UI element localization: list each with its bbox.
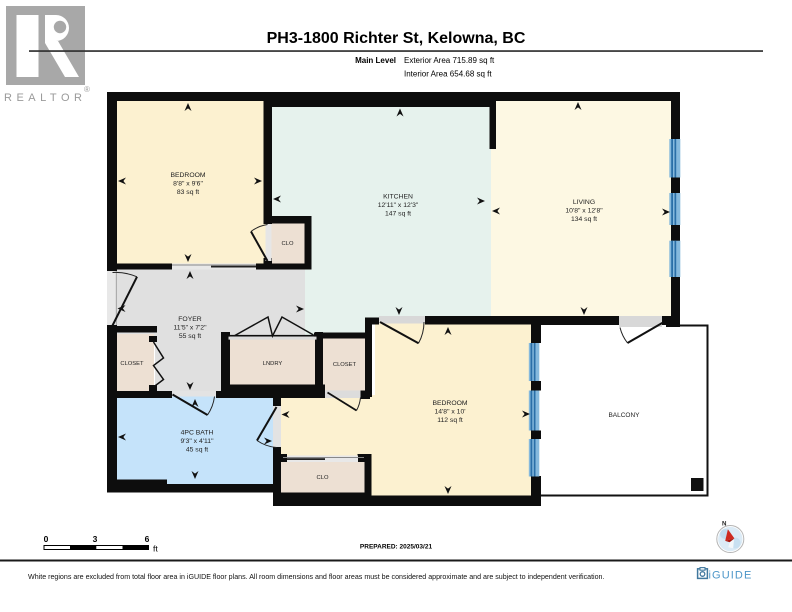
svg-text:6: 6 <box>145 534 150 544</box>
svg-text:14'8" x 10': 14'8" x 10' <box>434 409 465 416</box>
svg-text:55 sq ft: 55 sq ft <box>179 333 201 340</box>
svg-text:FOYER: FOYER <box>178 316 202 323</box>
svg-text:Interior Area 654.68 sq ft: Interior Area 654.68 sq ft <box>404 70 492 79</box>
svg-text:CLO: CLO <box>282 241 294 247</box>
svg-text:LIVING: LIVING <box>573 199 595 206</box>
svg-text:147 sq ft: 147 sq ft <box>385 211 411 218</box>
svg-text:10'8" x 12'8": 10'8" x 12'8" <box>565 208 603 215</box>
svg-text:112 sq ft: 112 sq ft <box>437 417 463 424</box>
svg-text:BEDROOM: BEDROOM <box>432 400 467 407</box>
svg-text:CLOSET: CLOSET <box>120 361 144 367</box>
svg-text:iGUIDE: iGUIDE <box>709 570 753 582</box>
svg-text:®: ® <box>84 85 90 94</box>
svg-text:KITCHEN: KITCHEN <box>383 194 413 201</box>
svg-text:White regions are excluded fro: White regions are excluded from total fl… <box>28 573 605 581</box>
svg-text:CLOSET: CLOSET <box>333 362 357 368</box>
svg-text:ft: ft <box>153 544 158 554</box>
svg-text:9'3" x 4'11": 9'3" x 4'11" <box>181 438 215 445</box>
svg-text:134 sq ft: 134 sq ft <box>571 216 597 223</box>
svg-text:BEDROOM: BEDROOM <box>170 172 205 179</box>
svg-text:LNDRY: LNDRY <box>263 361 283 367</box>
svg-text:BALCONY: BALCONY <box>608 412 640 419</box>
svg-text:0: 0 <box>44 534 49 544</box>
svg-text:4PC BATH: 4PC BATH <box>181 430 214 437</box>
svg-text:PH3-1800 Richter St, Kelowna,: PH3-1800 Richter St, Kelowna, BC <box>267 30 526 47</box>
svg-text:12'11" x 12'3": 12'11" x 12'3" <box>378 202 419 209</box>
svg-text:83 sq ft: 83 sq ft <box>177 189 199 196</box>
svg-text:45 sq ft: 45 sq ft <box>186 447 208 454</box>
svg-text:Exterior Area 715.89 sq ft: Exterior Area 715.89 sq ft <box>404 56 495 65</box>
svg-text:REALTOR: REALTOR <box>4 92 86 104</box>
svg-text:PREPARED: 2025/03/21: PREPARED: 2025/03/21 <box>360 544 433 551</box>
svg-text:3: 3 <box>93 534 98 544</box>
svg-text:Main Level: Main Level <box>355 56 396 65</box>
svg-text:11'5" x 7'2": 11'5" x 7'2" <box>174 325 208 332</box>
svg-text:8'8" x 9'6": 8'8" x 9'6" <box>173 181 203 188</box>
svg-text:CLO: CLO <box>317 475 329 481</box>
